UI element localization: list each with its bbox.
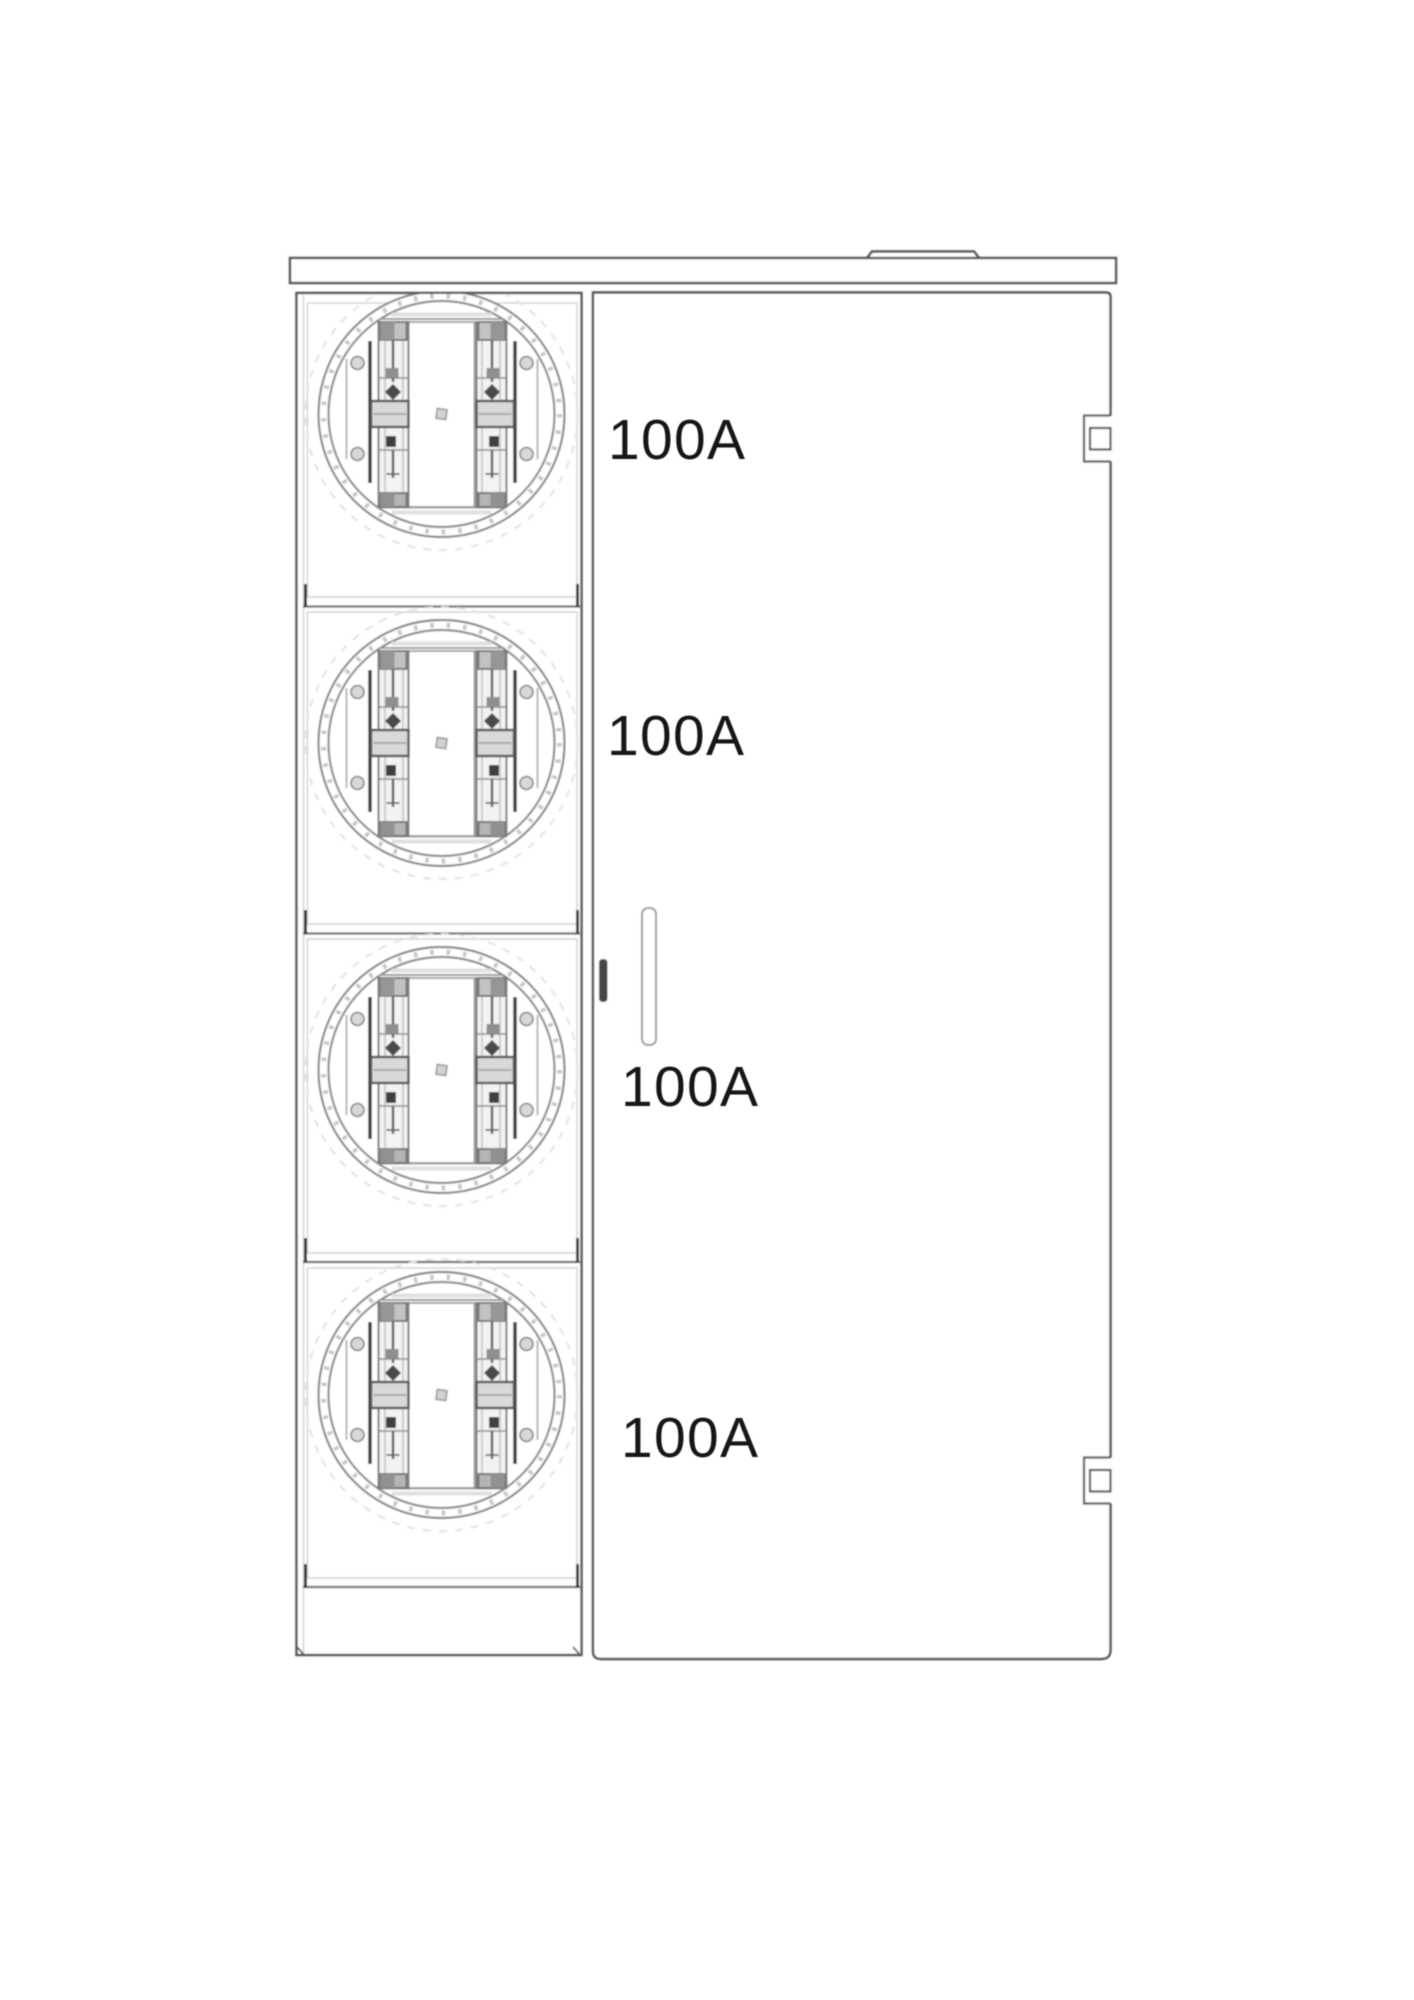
- svg-text:100A: 100A: [608, 408, 746, 472]
- svg-text:100A: 100A: [621, 1055, 759, 1119]
- svg-text:100A: 100A: [621, 1406, 759, 1470]
- svg-text:100A: 100A: [607, 704, 745, 768]
